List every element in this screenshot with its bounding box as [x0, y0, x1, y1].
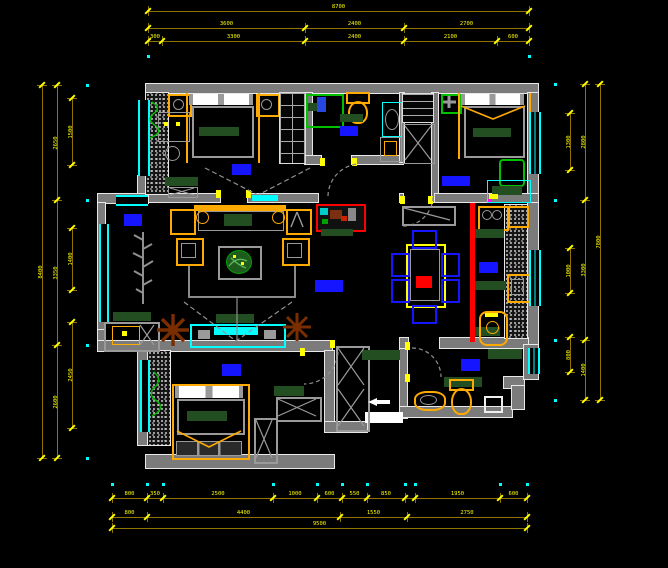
- dim-ext-dot: [499, 483, 502, 486]
- dim-label: 2650: [53, 132, 59, 154]
- dim-ext-dot: [146, 483, 149, 486]
- dim-line: [163, 498, 273, 499]
- dim-label: 2100: [440, 34, 462, 40]
- dim-label: 800: [119, 491, 141, 497]
- dim-label: 8400: [38, 261, 44, 283]
- dim-label: 2400: [344, 34, 366, 40]
- dim-label: 600: [503, 491, 525, 497]
- dim-line: [407, 517, 527, 518]
- dim-ext-dot: [554, 199, 557, 202]
- dim-ext-dot: [554, 399, 557, 402]
- dim-ext-dot: [86, 199, 89, 202]
- dim-label: 600: [319, 491, 341, 497]
- dim-line: [148, 28, 305, 29]
- dim-label: 3300: [581, 259, 587, 281]
- dim-label: 2500: [207, 491, 229, 497]
- dim-label: 1400: [68, 248, 74, 270]
- dim-line: [340, 517, 407, 518]
- dim-label: 1950: [447, 491, 469, 497]
- dim-line: [305, 41, 404, 42]
- dim-label: 850: [375, 491, 397, 497]
- dim-line: [147, 517, 340, 518]
- dim-label: 3350: [53, 262, 59, 284]
- dim-line: [112, 528, 527, 529]
- dim-line: [112, 517, 147, 518]
- dim-label: 2600: [53, 391, 59, 413]
- dim-label: 1000: [284, 491, 306, 497]
- dim-label: 4400: [233, 510, 255, 516]
- dim-line: [497, 41, 529, 42]
- dim-label: 1400: [581, 359, 587, 381]
- dim-line: [148, 11, 529, 12]
- dim-label: 1550: [363, 510, 385, 516]
- dim-label: 9500: [309, 521, 331, 527]
- dim-ext-dot: [528, 55, 531, 58]
- dim-label: 2700: [456, 21, 478, 27]
- dim-line: [415, 498, 500, 499]
- dim-ext-dot: [554, 339, 557, 342]
- dim-label: 2450: [68, 364, 74, 386]
- dim-ext-dot: [414, 483, 417, 486]
- dim-ext-dot: [111, 483, 114, 486]
- dim-label: 3600: [216, 21, 238, 27]
- dim-ext-dot: [272, 483, 275, 486]
- dim-line: [367, 498, 405, 499]
- dim-label: 600: [502, 34, 524, 40]
- dim-label: 1300: [566, 131, 572, 153]
- dim-ext-dot: [366, 483, 369, 486]
- dim-label: 550: [344, 491, 366, 497]
- dim-label: 2800: [581, 131, 587, 153]
- dim-label: 800: [119, 510, 141, 516]
- dim-ext-dot: [86, 344, 89, 347]
- dim-ext-dot: [526, 483, 529, 486]
- dim-line: [162, 41, 305, 42]
- dim-line: [273, 498, 317, 499]
- dim-line: [305, 28, 404, 29]
- dim-ext-dot: [554, 83, 557, 86]
- dim-ext-dot: [86, 84, 89, 87]
- dim-ext-dot: [316, 483, 319, 486]
- dim-label: 800: [566, 344, 572, 366]
- dimension-layer: 8700360024002700300330024002100600800350…: [0, 0, 668, 568]
- dim-line: [404, 28, 529, 29]
- dim-label: 2750: [456, 510, 478, 516]
- dim-label: 1500: [68, 121, 74, 143]
- dim-ext-dot: [341, 483, 344, 486]
- dim-label: 8700: [328, 4, 350, 10]
- dim-label: 7800: [596, 231, 602, 253]
- dim-ext-dot: [404, 483, 407, 486]
- dim-ext-dot: [86, 457, 89, 460]
- floorplan-canvas[interactable]: 8700360024002700300330024002100600800350…: [0, 0, 668, 568]
- dim-line: [404, 41, 497, 42]
- dim-label: 3300: [223, 34, 245, 40]
- dim-label: 1000: [566, 260, 572, 282]
- dim-ext-dot: [162, 483, 165, 486]
- dim-label: 2400: [344, 21, 366, 27]
- dim-ext-dot: [147, 55, 150, 58]
- dim-line: [112, 498, 147, 499]
